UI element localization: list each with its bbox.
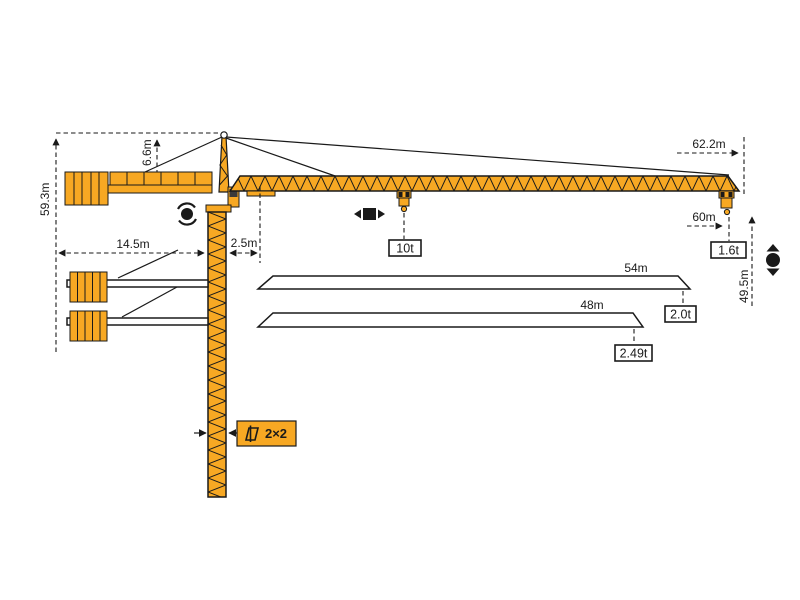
jib-foot [247, 191, 275, 196]
counterweight-block [65, 172, 108, 205]
jib-lattice [230, 176, 739, 191]
trolley-wheel [729, 192, 733, 197]
dim-total-height-label: 59.3m [38, 183, 52, 216]
tip-load-callout: 1.6t [711, 242, 746, 258]
jib-48-label: 48m [580, 298, 603, 312]
jib-54-bar [258, 276, 690, 289]
dim-offset-label: 2.5m [231, 236, 258, 250]
turntable [206, 205, 231, 212]
jib-48-load-label: 2.49t [620, 347, 648, 361]
tip-load-label: 1.6t [718, 244, 739, 258]
jib-48-bar [258, 313, 643, 327]
tie-rods [145, 137, 729, 177]
counter-jib-variant-1 [67, 250, 208, 302]
trolley-wheel [721, 192, 725, 197]
dim-head-label: 6.6m [140, 139, 154, 166]
counter-jib [65, 172, 212, 205]
dim-counterjib-label: 14.5m [116, 237, 149, 251]
hook-block [399, 198, 409, 206]
trolley-travel-icon [354, 208, 385, 220]
max-load-callout: 10t [389, 240, 421, 256]
variant-2-counterweight [70, 311, 107, 341]
dim-counter-jib-length: 14.5m [59, 237, 204, 253]
tower-mast [208, 212, 226, 497]
tie-rod-jib-outer [226, 137, 729, 175]
trolley-wheel [406, 192, 410, 197]
jib-54-label: 54m [624, 261, 647, 275]
dim-hook-height-label: 49.5m [737, 270, 751, 303]
max-load-label: 10t [396, 242, 414, 256]
dim-hook-radius: 60m [687, 210, 722, 226]
trolley-wheel [399, 192, 403, 197]
dim-hook-height: 49.5m [737, 217, 752, 306]
hook [724, 209, 729, 214]
tower-head [219, 132, 229, 192]
dim-max-radius-label: 62.2m [692, 137, 725, 151]
crane-diagram: 59.3m 6.6m [0, 0, 800, 600]
trolley-tip [719, 191, 734, 241]
variant-1-leader [118, 250, 178, 278]
jib-54-load-label: 2.0t [670, 308, 691, 322]
main-jib [230, 176, 739, 196]
hook-block [721, 198, 732, 208]
mast-section-label: 2×2 [265, 426, 287, 441]
jib-variant-48m: 48m 2.49t [258, 298, 652, 361]
tower-head-apex-pin [221, 132, 227, 138]
crane-diagram-svg: 59.3m 6.6m [0, 0, 800, 600]
hook [401, 206, 406, 211]
dim-hook-radius-label: 60m [692, 210, 715, 224]
variant-2-leader [122, 287, 177, 317]
slewing-icon [178, 203, 196, 224]
trolley-inner [397, 191, 411, 239]
variant-1-counterweight [70, 272, 107, 302]
hoist-icon [766, 244, 780, 276]
